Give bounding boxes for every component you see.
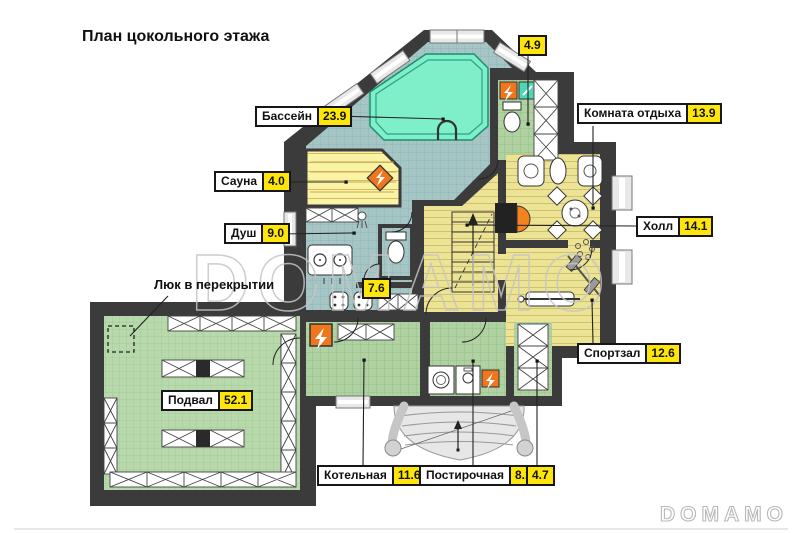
closet-shelf [534, 80, 558, 160]
room-name: Постирочная [419, 465, 511, 486]
room-name: Бассейн [255, 106, 319, 127]
room-area: 4.0 [264, 171, 291, 192]
room-label-boiler: Котельная 11.6 [317, 465, 427, 486]
room-label-hall: Холл 14.1 [636, 216, 713, 237]
room-area: 9.0 [263, 223, 290, 244]
room-area: 12.6 [647, 343, 680, 364]
storage-shelf [162, 430, 244, 447]
room-name: Спортзал [577, 343, 647, 364]
room-area: 13.9 [688, 103, 721, 124]
room-label-pool: Бассейн 23.9 [255, 106, 352, 127]
room-label-wc-bottom: 4.7 [526, 465, 555, 486]
hatch-note: Люк в перекрытии [154, 278, 274, 291]
toilet-icon [503, 102, 521, 132]
room-label-washroom: 7.6 [362, 278, 391, 299]
lounge-chair-icon [518, 156, 544, 186]
room-area: 7.6 [362, 278, 391, 299]
floor-plan-page: DOMAMO DOMAMO План цокольного этажа Люк … [0, 0, 800, 533]
room-label-wc-top: 4.9 [518, 35, 547, 56]
exterior-staircase [385, 406, 533, 460]
watermark-corner: DOMAMO [660, 503, 788, 526]
washing-machine-icon [428, 366, 454, 394]
storage-shelf [281, 334, 296, 480]
room-label-shower: Душ 9.0 [224, 223, 290, 244]
room-name: Подвал [161, 390, 220, 411]
cabinet-icon [306, 208, 358, 222]
room-area: 4.7 [526, 465, 555, 486]
room-name: Котельная [317, 465, 394, 486]
wc-bottom-closets [518, 324, 548, 390]
room-area: 23.9 [319, 106, 352, 127]
room-name: Сауна [214, 171, 264, 192]
room-label-cellar: Подвал 52.1 [161, 390, 253, 411]
floor-plan-drawing: DOMAMO DOMAMO [0, 0, 800, 533]
lounge-chair-icon [578, 156, 602, 186]
storage-shelf [110, 472, 296, 487]
electric-unit-icon [500, 82, 517, 101]
page-title: План цокольного этажа [82, 28, 269, 46]
room-area: 52.1 [220, 390, 253, 411]
side-table-icon [550, 158, 566, 184]
room-area: 4.9 [518, 35, 547, 56]
laundry-sink-icon [456, 366, 480, 394]
room-label-rest: Комната отдыха 13.9 [577, 103, 722, 124]
room-area: 14.1 [680, 216, 713, 237]
storage-shelf [162, 360, 244, 377]
electric-unit-icon [482, 370, 499, 389]
room-label-sauna: Сауна 4.0 [214, 171, 291, 192]
room-name: Холл [636, 216, 680, 237]
room-name: Душ [224, 223, 263, 244]
room-label-laundry: Постирочная 8.1 [419, 465, 538, 486]
room-label-gym: Спортзал 12.6 [577, 343, 681, 364]
storage-shelf [104, 398, 117, 474]
boiler-unit-icon [310, 324, 332, 349]
room-name: Комната отдыха [577, 103, 688, 124]
